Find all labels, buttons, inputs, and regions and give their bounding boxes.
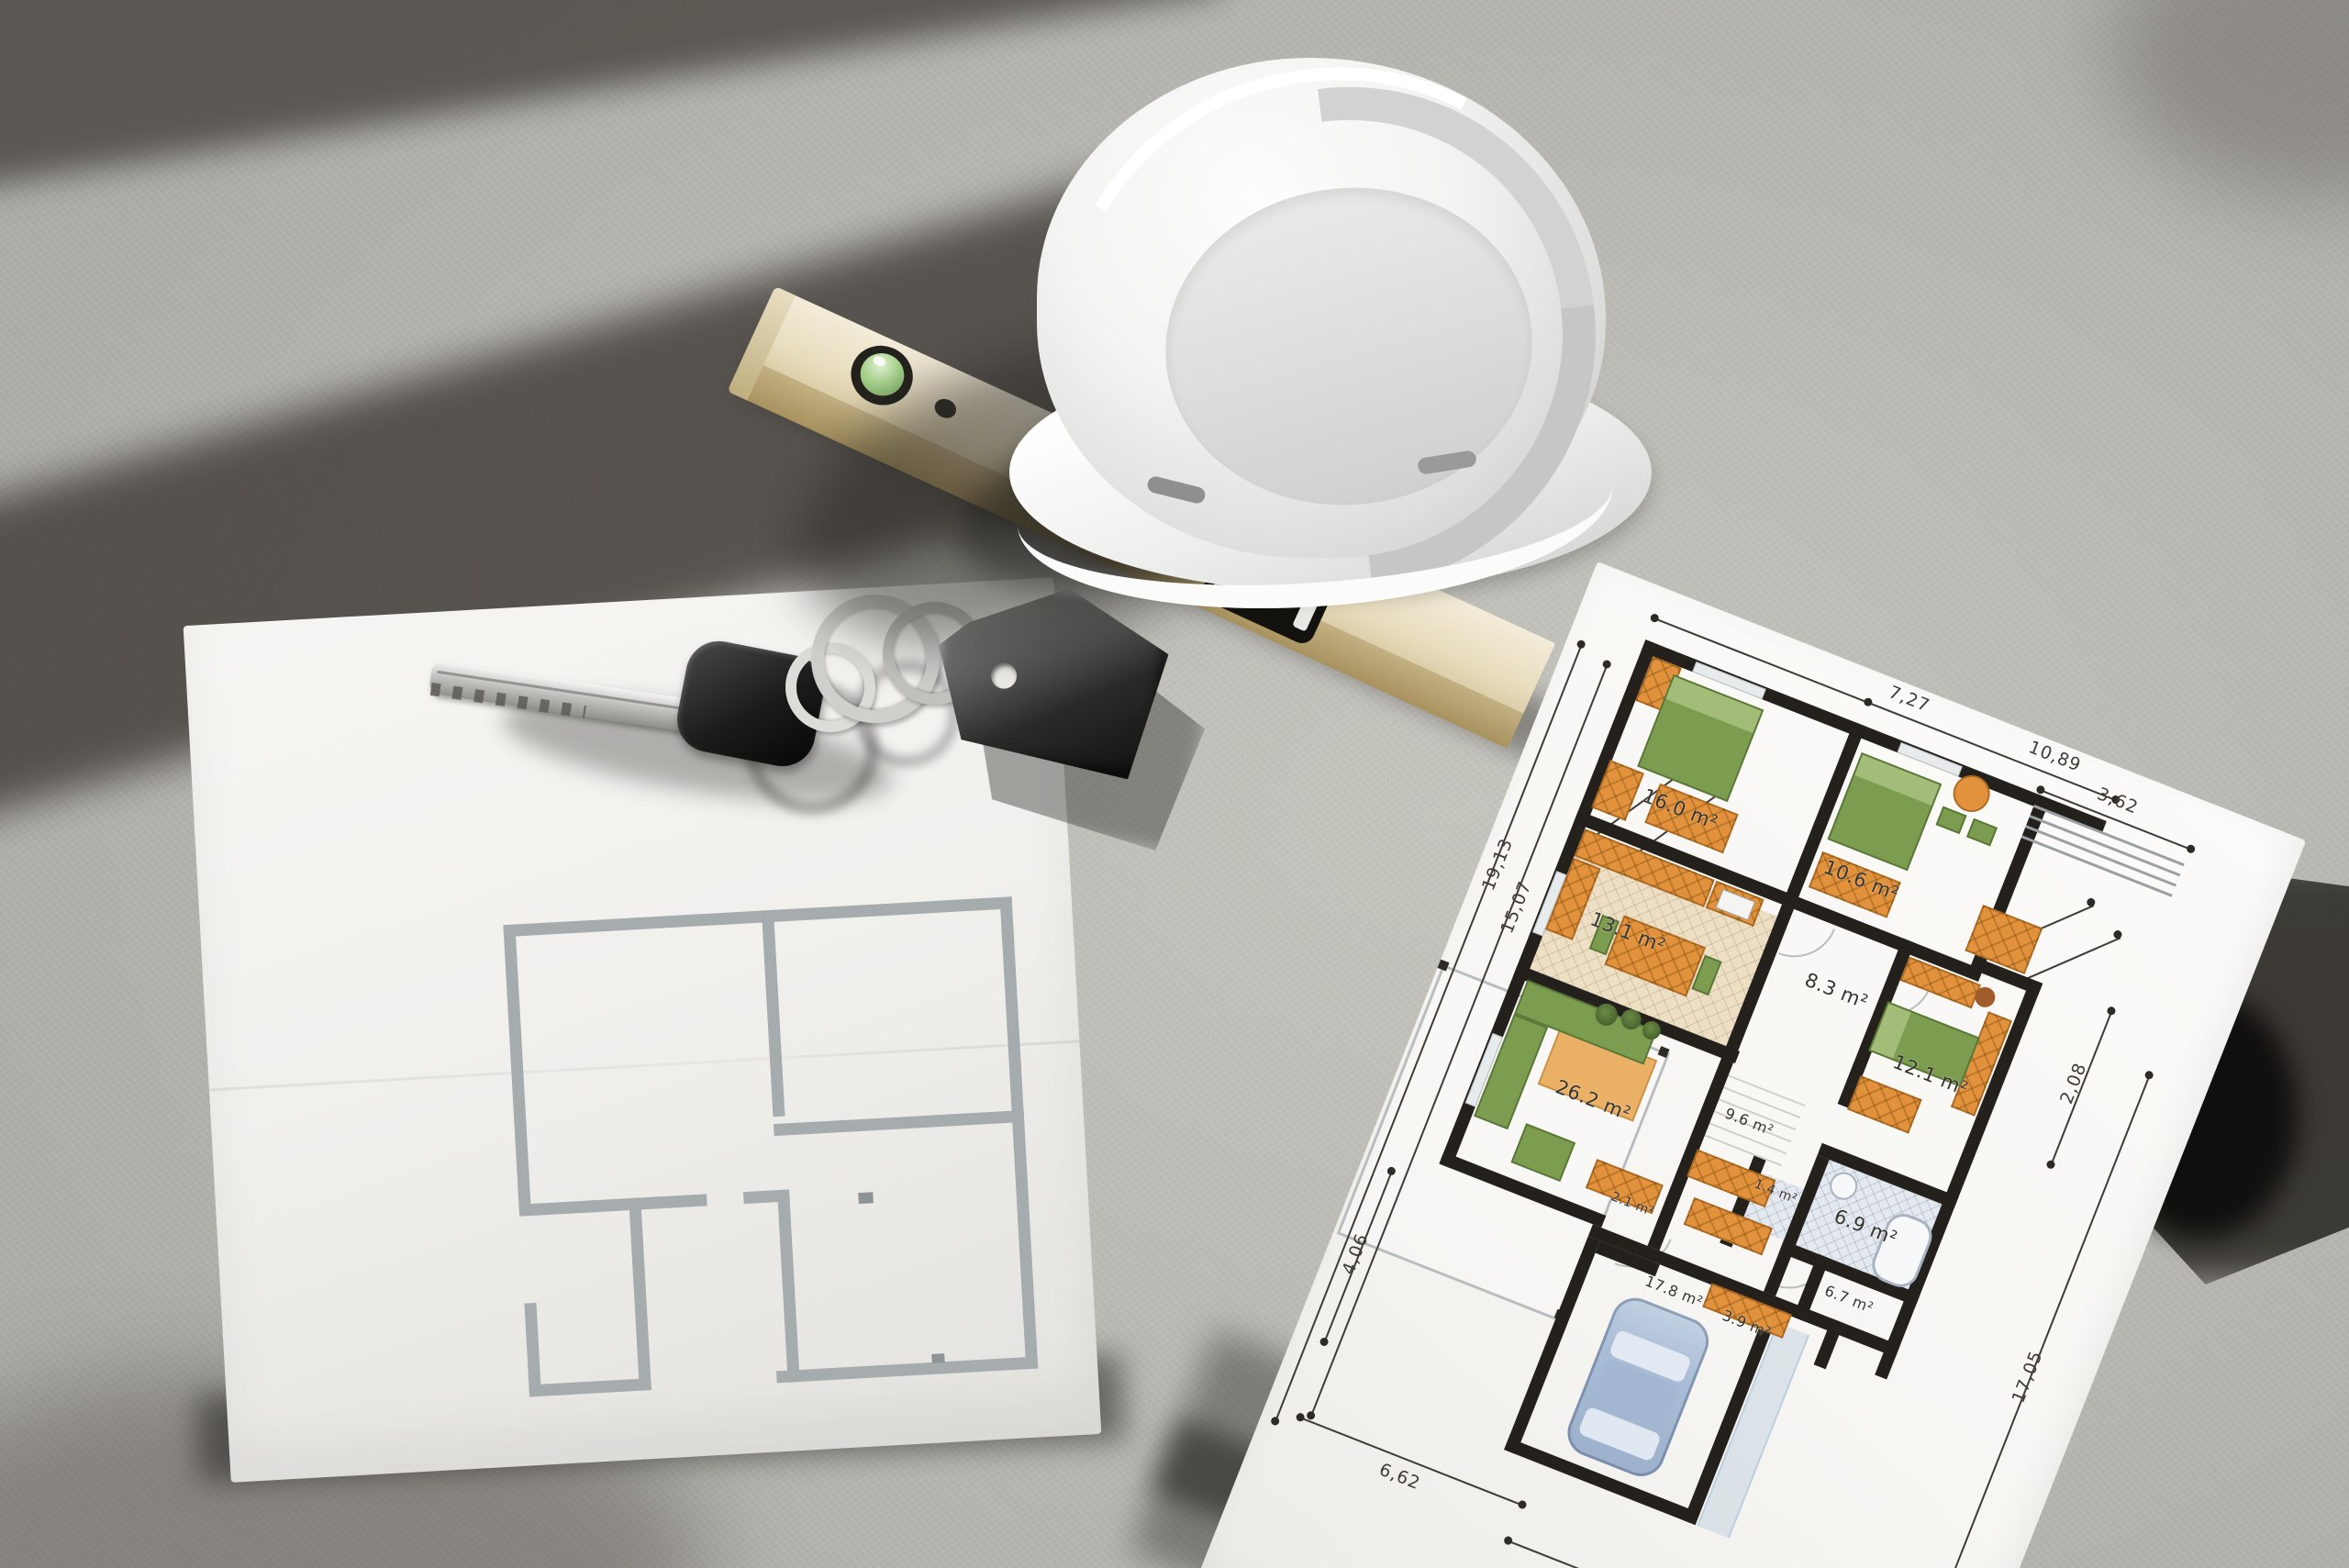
dimension-dot — [1601, 659, 1612, 670]
chair — [1966, 818, 1998, 847]
dimension-label: 17,05 — [2009, 1348, 2047, 1406]
chair — [1935, 806, 1966, 835]
dimension-dot — [2045, 1159, 2056, 1170]
marker-line — [2025, 937, 2121, 980]
dimension-dot — [1649, 613, 1660, 624]
dimension-label: 19,13 — [1478, 835, 1517, 893]
dimension-label: 10,89 — [2026, 737, 2084, 775]
hard-hat — [1009, 50, 1642, 619]
car — [1561, 1291, 1716, 1484]
dimension-line — [1299, 1417, 1522, 1506]
wall-segment — [503, 925, 530, 1209]
marker-dot — [2112, 929, 2123, 940]
dimension-label: 2,08 — [2056, 1060, 2090, 1106]
keychain-hole — [990, 662, 1019, 690]
dimension-dot — [1575, 639, 1586, 650]
dimension-dot — [1295, 1412, 1306, 1423]
dimension-line — [1508, 1540, 1696, 1568]
dimension-dot — [2106, 1006, 2117, 1017]
dimension-dot — [1319, 1337, 1330, 1348]
construction-scene: 16 700 — [0, 0, 2349, 1568]
wall-segment — [503, 896, 1012, 937]
wall-segment — [762, 910, 785, 1117]
wall-segment — [743, 1189, 790, 1204]
dimension-dot — [1270, 1416, 1281, 1427]
dimension-label: 15,07 — [1497, 878, 1535, 936]
wall-segment — [1000, 896, 1039, 1369]
plan-mark — [931, 1353, 945, 1363]
wall-segment — [777, 1194, 799, 1382]
balcony-railing — [2021, 835, 2173, 896]
dimension-dot — [1863, 696, 1874, 707]
room-area-label: 8.3 m² — [1802, 969, 1872, 1014]
wall-segment — [774, 1110, 1024, 1136]
wall-segment — [524, 1303, 541, 1397]
dimension-dot — [2143, 1070, 2154, 1081]
wall-segment — [529, 1378, 651, 1396]
dimension-dot — [2186, 843, 2197, 854]
dresser — [1847, 1075, 1922, 1134]
dimension-line — [1908, 1074, 2150, 1568]
wall-segment — [629, 1197, 651, 1390]
dimension-dot — [1503, 1535, 1514, 1546]
right-floorplan-paper: 16.0 m² 10.6 m² 13.1 m² 8.3 m² 12.1 m² 2… — [1197, 562, 2306, 1568]
wall-segment — [776, 1357, 1038, 1384]
wall-segment — [518, 1194, 707, 1216]
dimension-dot — [1517, 1499, 1528, 1510]
marker-dot — [2086, 897, 2097, 908]
plan-mark — [858, 1192, 874, 1204]
shadow-top-right — [2110, 0, 2349, 202]
